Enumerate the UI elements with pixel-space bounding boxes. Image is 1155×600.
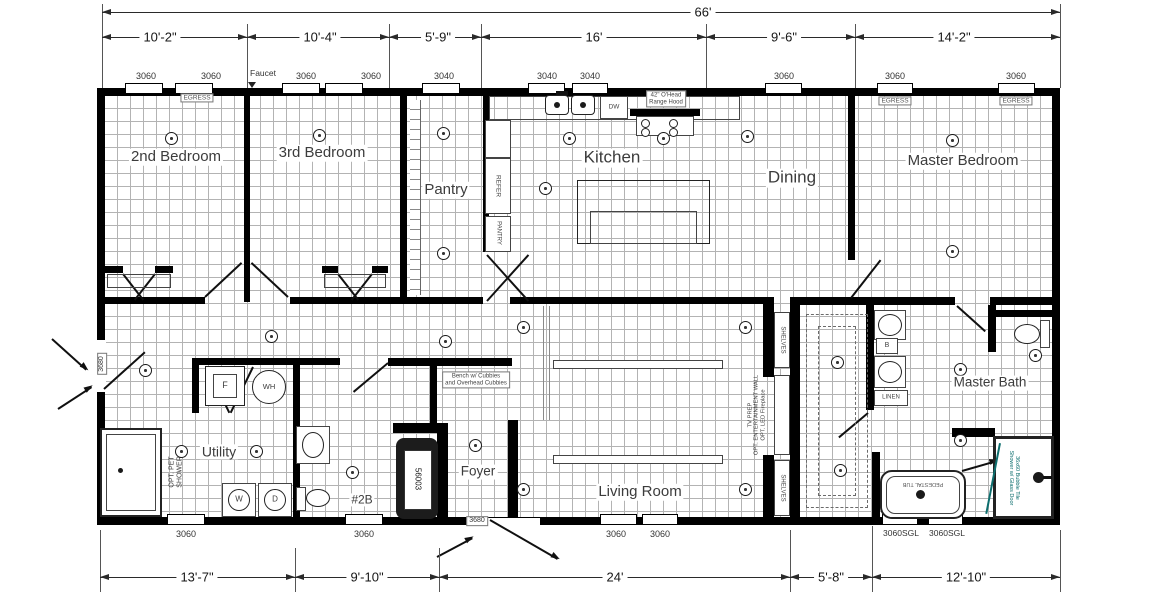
room-label-master-bedroom: Master Bedroom xyxy=(906,153,1021,170)
wall xyxy=(400,92,407,302)
ceiling-light-icon xyxy=(165,132,178,145)
room-label-bedroom3: 3rd Bedroom xyxy=(277,145,368,162)
extension-line xyxy=(295,548,296,592)
window-size-label: 3040 xyxy=(433,71,455,81)
closet-wall xyxy=(372,266,388,273)
egress-label: EGRESS xyxy=(180,93,213,102)
faucet-label: Faucet xyxy=(249,68,277,78)
window-size-label: 3060 xyxy=(295,71,317,81)
ceiling-light-icon xyxy=(313,129,326,142)
water-heater-label: WH xyxy=(261,383,278,391)
dimension-label: 10'-4" xyxy=(299,30,340,45)
leader-arrow xyxy=(437,537,473,558)
window-size-label: 3060 xyxy=(353,529,375,539)
room-label-utility: Utility xyxy=(200,444,238,459)
sink-drain-icon xyxy=(554,102,560,108)
ceiling-light-icon xyxy=(739,321,752,334)
extension-line xyxy=(102,4,103,88)
extension-line xyxy=(439,548,440,592)
dimension-label: 10'-2" xyxy=(139,30,180,45)
closet-wall xyxy=(155,266,173,273)
floor-transition xyxy=(543,306,544,420)
ceiling-light-icon xyxy=(741,130,754,143)
window-size-label: 3060SGL xyxy=(882,528,920,538)
ceiling-light-icon xyxy=(517,483,530,496)
window-size-label: 3060 xyxy=(884,71,906,81)
arrowhead-icon xyxy=(464,534,475,544)
room-label-living: Living Room xyxy=(596,484,683,501)
bathroom-sink-icon xyxy=(878,361,902,383)
window-size-label: 3060 xyxy=(200,71,222,81)
upper-cabinet xyxy=(485,120,511,158)
window-size-label: 3060 xyxy=(135,71,157,81)
wall xyxy=(388,358,512,366)
wall xyxy=(996,310,1052,317)
dimension-label: 5'-9" xyxy=(421,30,455,45)
dimension-line-overall xyxy=(102,12,1060,13)
bathroom-sink-icon xyxy=(302,432,324,458)
room-label-master-bath: Master Bath xyxy=(952,376,1029,391)
wall xyxy=(192,358,340,365)
ceiling-light-icon xyxy=(539,182,552,195)
dryer-label: D xyxy=(270,496,280,505)
kitchen-island-seating xyxy=(590,211,697,244)
arrowhead-icon xyxy=(83,383,94,393)
window-size-label: 3060 xyxy=(175,529,197,539)
wall xyxy=(508,420,518,517)
sofa-outline xyxy=(553,360,723,369)
dimension-label: 5'-8" xyxy=(814,570,848,585)
ceiling-light-icon xyxy=(831,356,844,369)
tub-model-label: 56003 xyxy=(413,466,422,492)
window xyxy=(325,83,363,94)
window xyxy=(175,83,213,94)
window-size-label: 3060 xyxy=(649,529,671,539)
ceiling-light-icon xyxy=(657,132,670,145)
dimension-label: 16' xyxy=(582,30,607,45)
wall xyxy=(988,305,996,352)
ceiling-light-icon xyxy=(563,132,576,145)
ceiling-light-icon xyxy=(946,245,959,258)
dimension-label: 13'-7" xyxy=(176,570,217,585)
dimension-label: 24' xyxy=(603,570,628,585)
window-size-label: 3060 xyxy=(605,529,627,539)
bench-cubbies-label: Bench w/ Cubbiesand Overhead Cubbies xyxy=(442,371,510,388)
ceiling-light-icon xyxy=(175,445,188,458)
window-size-label: 3040 xyxy=(579,71,601,81)
linen-label: LINEN xyxy=(880,395,902,402)
window xyxy=(167,514,205,525)
room-label-kitchen: Kitchen xyxy=(582,149,643,168)
ceiling-light-icon xyxy=(739,483,752,496)
range-hood-label: 42" O'HeadRange Hood xyxy=(646,90,686,107)
faucet-icon xyxy=(248,82,256,88)
base-cabinet-label: B xyxy=(883,342,892,350)
egress-label: EGRESS xyxy=(999,96,1032,105)
front-door-label: 3680 xyxy=(466,516,488,526)
arrowhead-icon xyxy=(80,362,91,372)
window-size-label: 3060 xyxy=(1005,71,1027,81)
extension-line xyxy=(872,526,873,592)
toilet-tank xyxy=(1040,320,1050,348)
wall xyxy=(437,433,448,517)
wall xyxy=(290,297,380,304)
shelves-label: SHELVES xyxy=(779,472,786,503)
toilet-icon xyxy=(1014,324,1040,344)
wall xyxy=(192,358,199,413)
ceiling-light-icon xyxy=(469,439,482,452)
sink-drain-icon xyxy=(580,102,586,108)
wall xyxy=(244,92,250,302)
wall xyxy=(510,297,763,304)
wall xyxy=(380,297,483,304)
wall xyxy=(790,297,800,517)
pantry-cabinet-label: PANTRY xyxy=(495,219,502,247)
arrowhead-icon xyxy=(550,552,561,562)
closet-wall xyxy=(322,266,338,273)
window xyxy=(765,83,802,94)
wall xyxy=(97,297,205,304)
wall xyxy=(393,423,448,433)
wall xyxy=(430,365,437,425)
ceiling-light-icon xyxy=(439,335,452,348)
shelves-label: SHELVES xyxy=(779,324,786,355)
window xyxy=(422,83,460,94)
pedestal-tub-label: PEDESTAL TUB xyxy=(901,481,946,487)
wall xyxy=(848,92,855,260)
ceiling-light-icon xyxy=(265,330,278,343)
closet-shelf xyxy=(107,274,171,288)
window xyxy=(282,83,320,94)
wall xyxy=(763,297,774,377)
extension-line xyxy=(790,530,791,592)
room-label-bedroom2: 2nd Bedroom xyxy=(129,149,223,166)
wall xyxy=(800,297,955,305)
sink-faucet-icon xyxy=(556,91,568,95)
wall xyxy=(763,455,774,517)
closet-wall xyxy=(105,266,123,273)
dimension-label: 9'-6" xyxy=(767,30,801,45)
window xyxy=(572,83,608,94)
window-size-label: 3060 xyxy=(360,71,382,81)
ceiling-light-icon xyxy=(250,445,263,458)
ceiling-light-icon xyxy=(437,247,450,260)
window-size-label: 3060 xyxy=(773,71,795,81)
room-label-bath2: #2B xyxy=(349,493,374,506)
ceiling-light-icon xyxy=(346,466,359,479)
sofa-outline xyxy=(553,455,723,464)
window-size-label: 3060SGL xyxy=(928,528,966,538)
extension-line xyxy=(1060,4,1061,88)
floor-transition xyxy=(549,306,550,420)
washer-label: W xyxy=(233,496,245,505)
window xyxy=(345,514,383,525)
tub-faucet-icon xyxy=(916,490,925,499)
room-label-dining: Dining xyxy=(766,169,818,188)
bathroom-sink-icon xyxy=(878,314,902,336)
pet-shower-label: OPT. PETSHOWER xyxy=(168,454,183,490)
dimension-label: 12'-10" xyxy=(942,570,990,585)
showerhead-arm xyxy=(1043,476,1052,479)
range-hood-icon xyxy=(630,109,700,116)
ceiling-light-icon xyxy=(437,127,450,140)
extension-line xyxy=(1060,530,1061,592)
window xyxy=(600,514,637,525)
window-size-label: 3040 xyxy=(536,71,558,81)
room-label-pantry: Pantry xyxy=(422,182,469,199)
pet-shower-stall-inner xyxy=(106,434,156,511)
side-door-label: 3680 xyxy=(97,353,107,375)
ceiling-light-icon xyxy=(517,321,530,334)
ceiling-light-icon xyxy=(834,464,847,477)
leader-arrow xyxy=(57,386,92,409)
window xyxy=(642,514,678,525)
dishwasher-label: DW xyxy=(607,103,622,110)
egress-label: EGRESS xyxy=(878,96,911,105)
ceiling-light-icon xyxy=(139,364,152,377)
room-label-foyer: Foyer xyxy=(459,465,498,480)
toilet-tank xyxy=(296,487,306,511)
furnace-label: F xyxy=(220,381,230,391)
window xyxy=(125,83,163,94)
dimension-label-overall: 66' xyxy=(691,5,716,20)
drain-icon xyxy=(118,468,123,473)
window xyxy=(877,83,913,94)
ceiling-light-icon xyxy=(954,434,967,447)
entertainment-wall-note: TV PREP OPT. ENTERTAINMENT WALL OPT. LED… xyxy=(747,373,766,457)
closet-shelf xyxy=(324,274,386,288)
toilet-icon xyxy=(306,489,330,507)
dimension-label: 14'-2" xyxy=(933,30,974,45)
shower-note: 36x60 Bubble TileShower w/ Glass Door xyxy=(1008,449,1020,508)
wall xyxy=(990,297,1052,305)
refrigerator-label: REFER xyxy=(494,173,501,199)
wall xyxy=(872,452,880,517)
entertainment-niche xyxy=(774,375,790,455)
leader-arrow xyxy=(51,338,87,370)
dimension-label: 9'-10" xyxy=(346,570,387,585)
window xyxy=(998,83,1035,94)
pantry-shelves xyxy=(410,100,421,295)
floor-plan: DW 42" O'HeadRange Hood REFER PANTRY OPT… xyxy=(0,0,1155,600)
extension-line xyxy=(100,530,101,592)
ceiling-light-icon xyxy=(946,134,959,147)
ceiling-light-icon xyxy=(1029,349,1042,362)
